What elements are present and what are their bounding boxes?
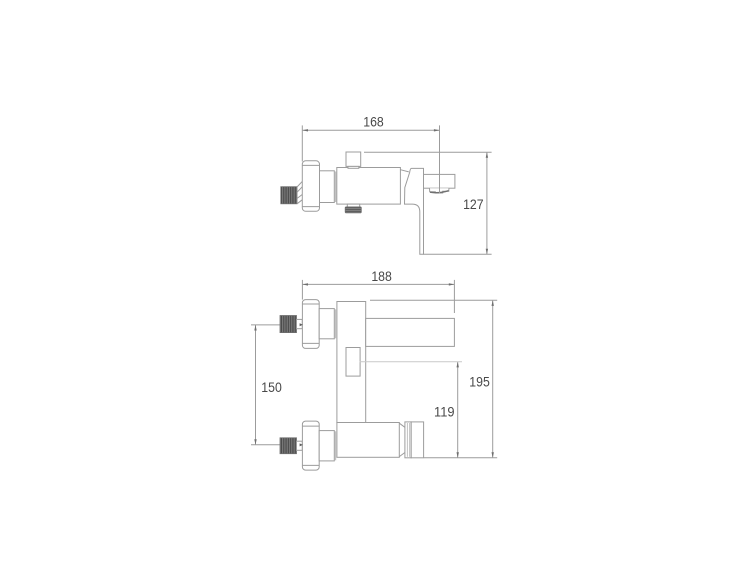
svg-text:127: 127 xyxy=(463,197,484,212)
svg-text:119: 119 xyxy=(434,405,455,420)
svg-text:188: 188 xyxy=(371,269,392,284)
svg-text:168: 168 xyxy=(363,115,384,130)
svg-text:195: 195 xyxy=(469,374,490,389)
svg-text:150: 150 xyxy=(261,380,282,395)
